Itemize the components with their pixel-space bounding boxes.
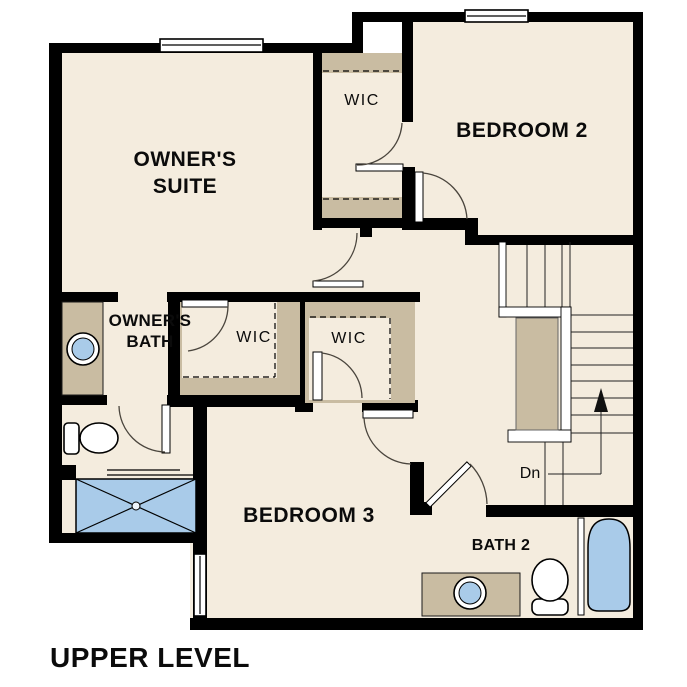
stairs-dn-label: Dn: [520, 465, 540, 482]
owners-suite-window: [160, 39, 263, 52]
floor-plan: OWNER'S SUITE BEDROOM 2 BEDROOM 3 OWNER'…: [0, 0, 687, 687]
wic-right-label: WIC: [331, 330, 367, 347]
bedroom3-label: BEDROOM 3: [243, 504, 375, 527]
owners-toilet: [64, 423, 118, 454]
shower: [76, 479, 196, 533]
stair-landing: [516, 318, 558, 430]
owners-suite-label-line1: OWNER'S: [134, 148, 237, 171]
owners-bath-sink: [67, 333, 99, 365]
shower-drain: [132, 502, 140, 510]
level-title: UPPER LEVEL: [50, 642, 250, 673]
wic-middle-label: WIC: [236, 329, 272, 346]
bedroom2-label: BEDROOM 2: [456, 119, 588, 142]
bath2-sink: [454, 577, 486, 609]
owners-bath-label-line2: BATH: [126, 332, 173, 351]
wic-top-label: WIC: [344, 92, 380, 109]
bath2-label: BATH 2: [472, 537, 530, 554]
stair-railing: [499, 242, 506, 317]
bath2-toilet: [532, 559, 568, 615]
bedroom2-window: [465, 10, 528, 22]
bedroom3-window: [194, 554, 206, 616]
owners-suite-label-line2: SUITE: [153, 175, 217, 198]
owners-bath-label-line1: OWNER'S: [109, 311, 192, 330]
wic-top-shelf-upper: [322, 53, 402, 73]
wic-top-shelf-lower: [322, 197, 402, 218]
chase-notch: [363, 22, 403, 53]
